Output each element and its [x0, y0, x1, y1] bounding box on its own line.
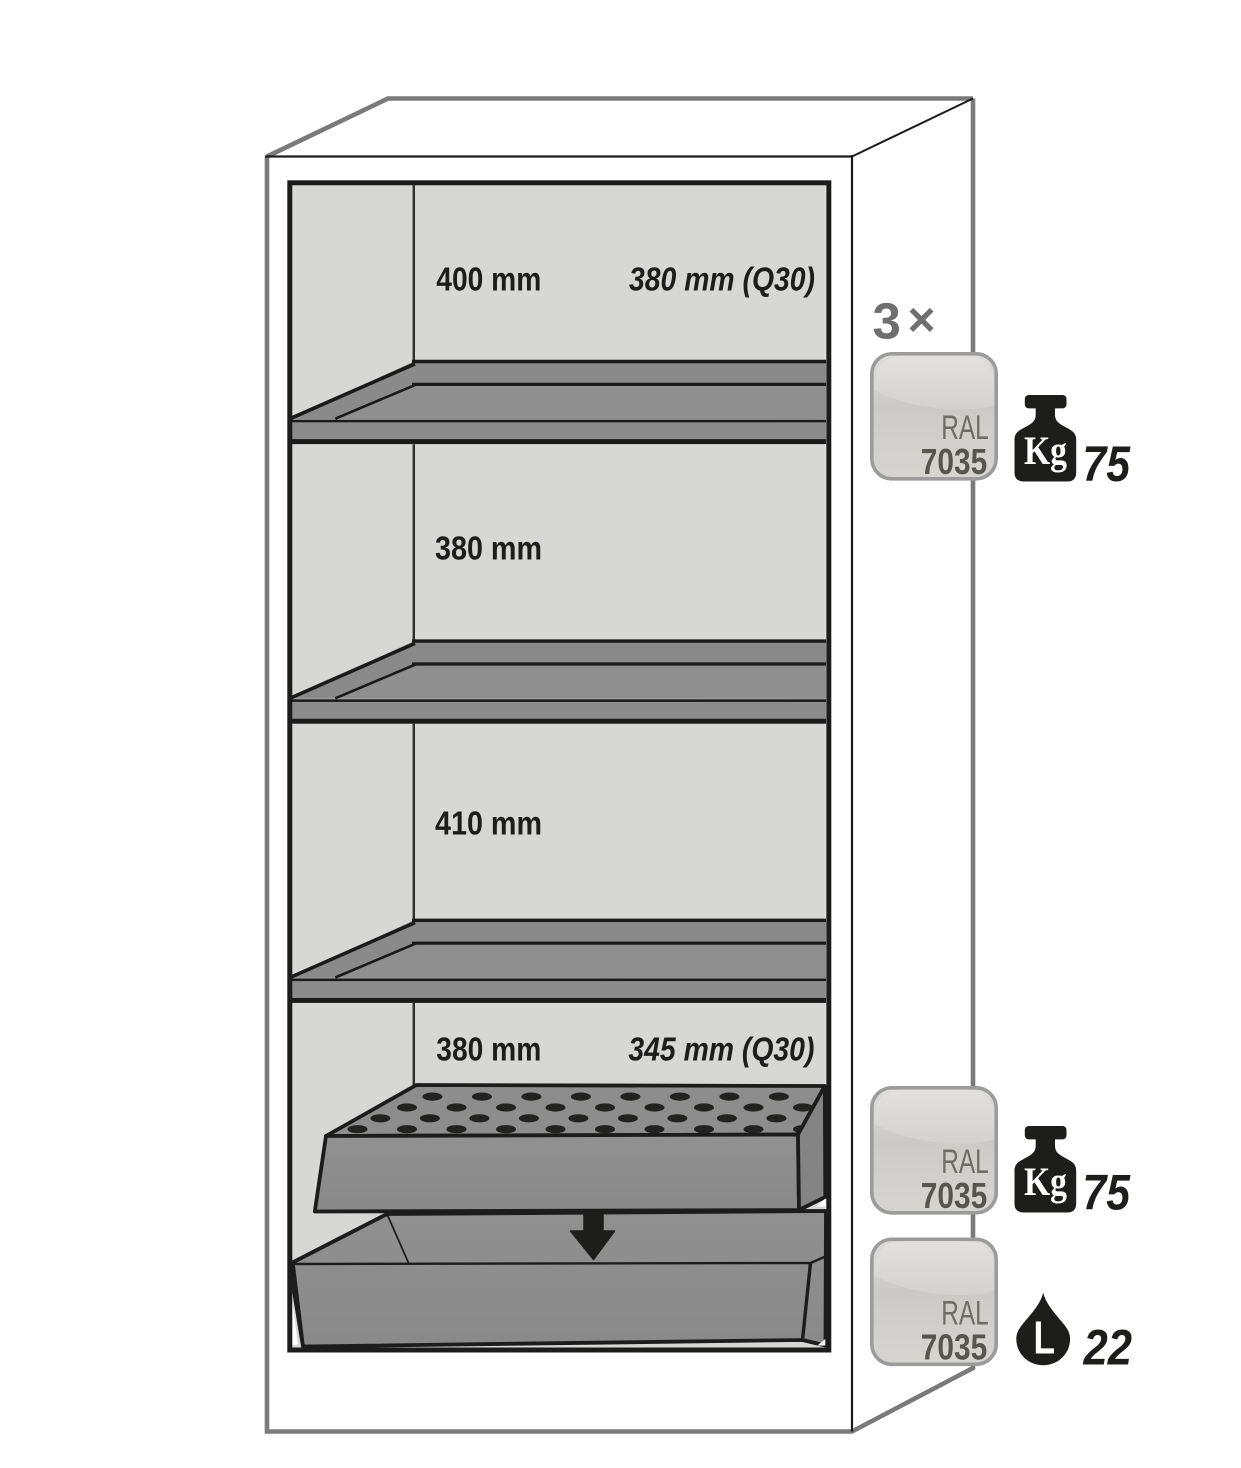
svg-text:380 mm: 380 mm	[435, 530, 542, 567]
svg-text:Kg: Kg	[1024, 1159, 1067, 1204]
svg-text:410 mm: 410 mm	[435, 805, 542, 842]
svg-text:7035: 7035	[921, 1327, 988, 1368]
svg-text:75: 75	[1083, 1165, 1132, 1221]
svg-text:380 mm: 380 mm	[436, 1031, 541, 1068]
svg-text:3: 3	[873, 293, 901, 350]
svg-text:7035: 7035	[921, 441, 988, 482]
svg-text:Kg: Kg	[1024, 428, 1067, 473]
svg-text:400 mm: 400 mm	[436, 261, 541, 298]
svg-text:380 mm (Q30): 380 mm (Q30)	[629, 261, 815, 298]
svg-text:75: 75	[1083, 436, 1132, 492]
svg-text:7035: 7035	[921, 1175, 988, 1216]
svg-text:345 mm (Q30): 345 mm (Q30)	[628, 1031, 814, 1068]
svg-text:×: ×	[908, 294, 936, 347]
svg-text:L: L	[1034, 1312, 1056, 1364]
svg-text:22: 22	[1083, 1320, 1133, 1376]
